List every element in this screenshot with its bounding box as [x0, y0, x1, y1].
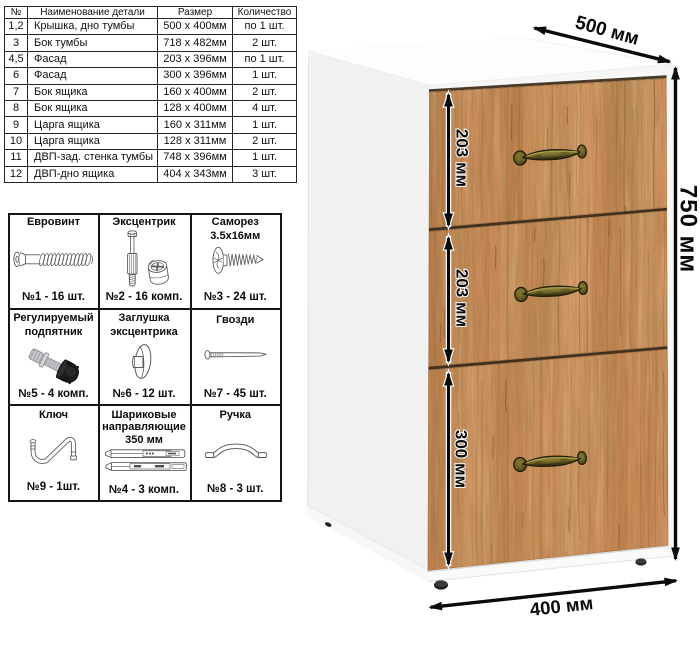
svg-text:203 мм: 203 мм — [453, 269, 472, 327]
svg-text:300 мм: 300 мм — [452, 430, 471, 488]
svg-text:750 мм: 750 мм — [675, 185, 700, 273]
svg-text:203 мм: 203 мм — [453, 129, 472, 187]
svg-text:500 мм: 500 мм — [573, 12, 641, 50]
